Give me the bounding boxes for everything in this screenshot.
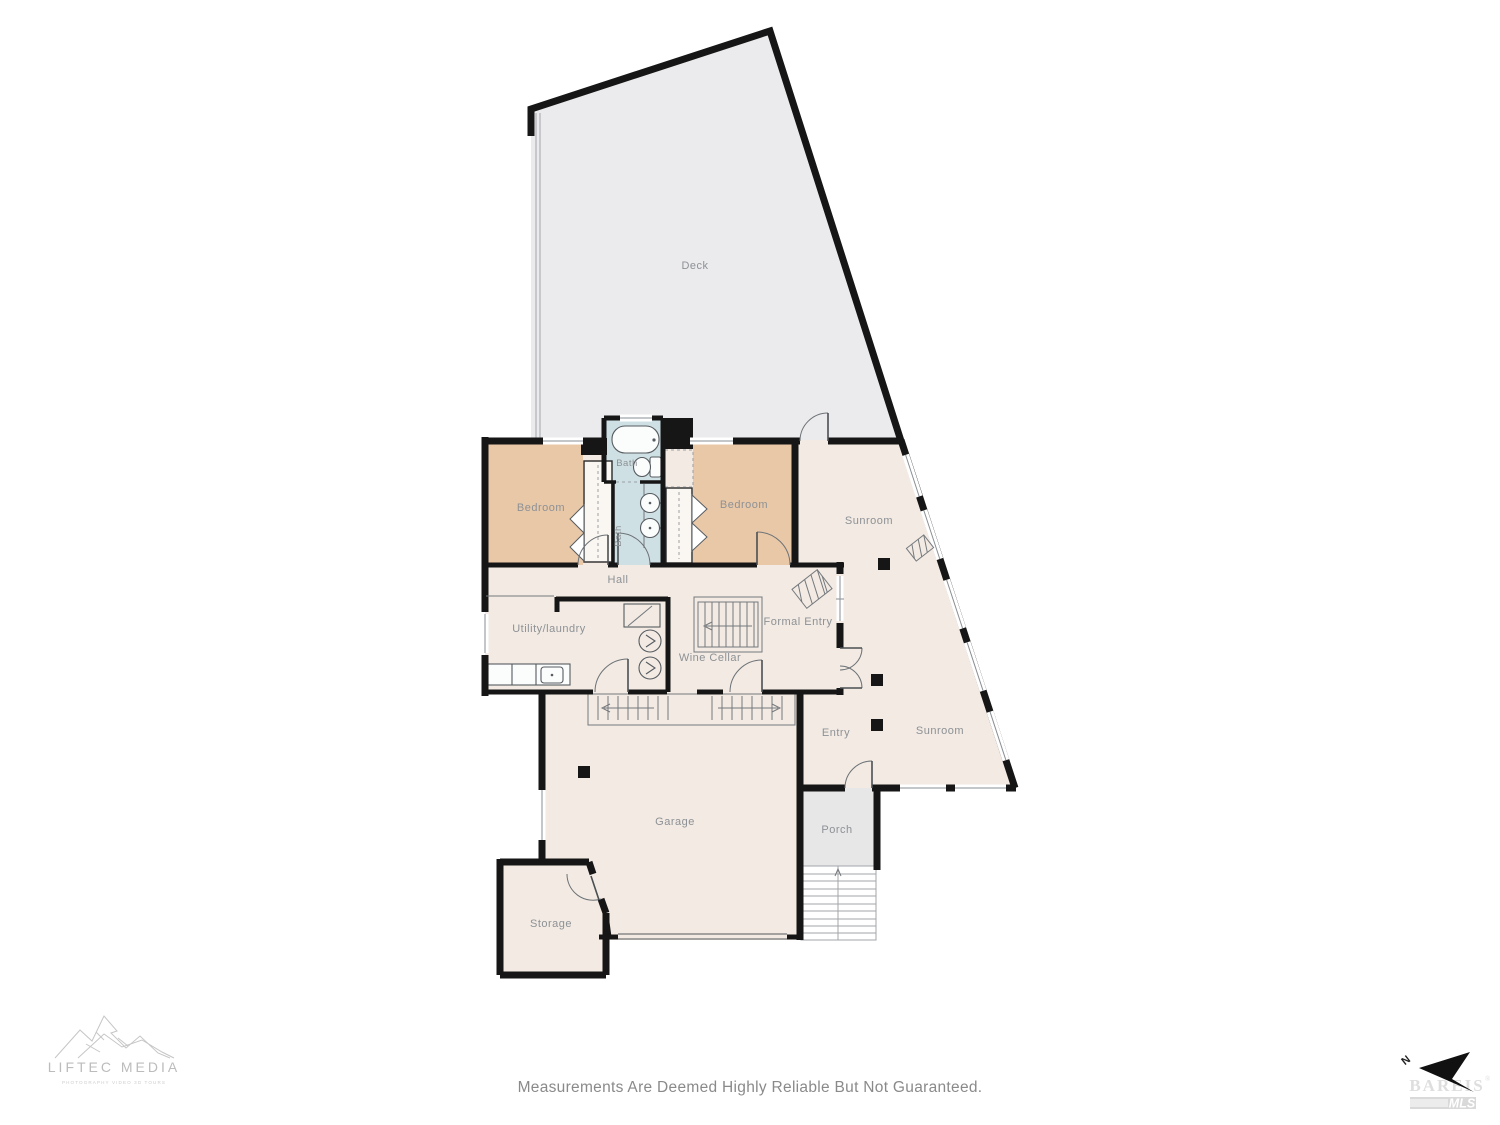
room-label: Deck	[681, 260, 708, 272]
room-label: Formal Entry	[764, 616, 833, 628]
room-label: Sunroom	[845, 515, 893, 527]
wall-mass	[581, 438, 607, 455]
liftec-media-logo: LIFTEC MEDIA PHOTOGRAPHY VIDEO 3D TOURS	[48, 1016, 180, 1085]
logo-title: LIFTEC MEDIA	[48, 1059, 180, 1075]
room-label: Sunroom	[916, 725, 964, 737]
north-label: N	[1399, 1053, 1413, 1067]
column-post	[578, 766, 590, 778]
registered-mark: ®	[1485, 1075, 1491, 1083]
column-post	[878, 558, 890, 570]
room-label: Porch	[821, 824, 852, 836]
room-label: Bedroom	[517, 502, 565, 514]
disclaimer-text: Measurements Are Deemed Highly Reliable …	[518, 1079, 983, 1096]
wall-mass	[661, 418, 693, 449]
mls-suffix: MLS	[1449, 1097, 1476, 1111]
room-label: Garage	[655, 816, 695, 828]
exterior-stairs	[801, 866, 876, 940]
room-label: Wine Cellar	[679, 652, 741, 664]
bareis-mls-logo: BAREIS ® MLS N	[1399, 1052, 1491, 1111]
floor-plan-image: Deck	[0, 0, 1500, 1125]
room-label: Bedroom	[720, 499, 768, 511]
logo-subtitle: PHOTOGRAPHY VIDEO 3D TOURS	[62, 1080, 166, 1085]
column-post	[871, 674, 883, 686]
room-label: Entry	[822, 727, 850, 739]
room-label: Hall	[608, 574, 629, 586]
room-label: Bath	[616, 458, 638, 469]
floor-plan-page: Deck	[0, 0, 1500, 1125]
window	[836, 576, 844, 621]
laundry-counter	[488, 664, 570, 685]
bathtub-icon	[612, 426, 659, 453]
room-label: Utility/laundry	[512, 623, 586, 635]
mls-bar-light	[1410, 1099, 1448, 1107]
deck: Deck	[531, 31, 901, 441]
room-label: Bath	[613, 525, 624, 547]
room-label: Storage	[530, 918, 572, 930]
column-post	[871, 719, 883, 731]
